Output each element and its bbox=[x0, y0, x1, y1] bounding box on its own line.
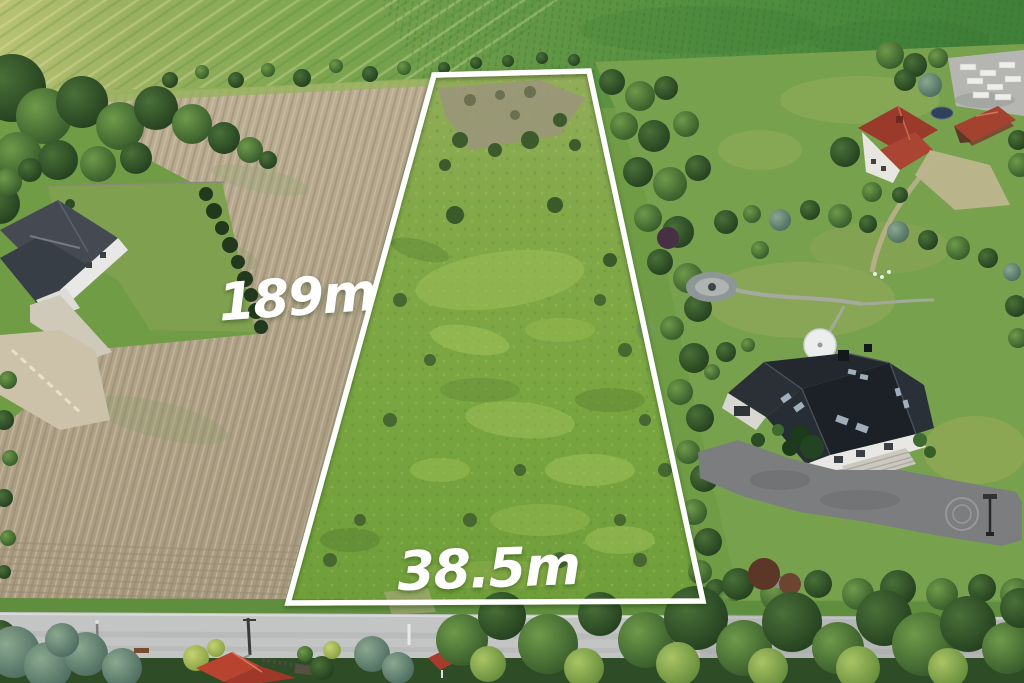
bench bbox=[134, 648, 149, 653]
plot-length-label: 189m bbox=[217, 263, 378, 334]
trampoline bbox=[931, 107, 953, 119]
scene: 189m 38.5m bbox=[0, 0, 1024, 683]
utility-pole bbox=[248, 618, 250, 655]
construction-yard bbox=[948, 50, 1024, 116]
plot-width-label: 38.5m bbox=[396, 534, 580, 603]
aerial-photo: 189m 38.5m bbox=[0, 0, 1024, 683]
